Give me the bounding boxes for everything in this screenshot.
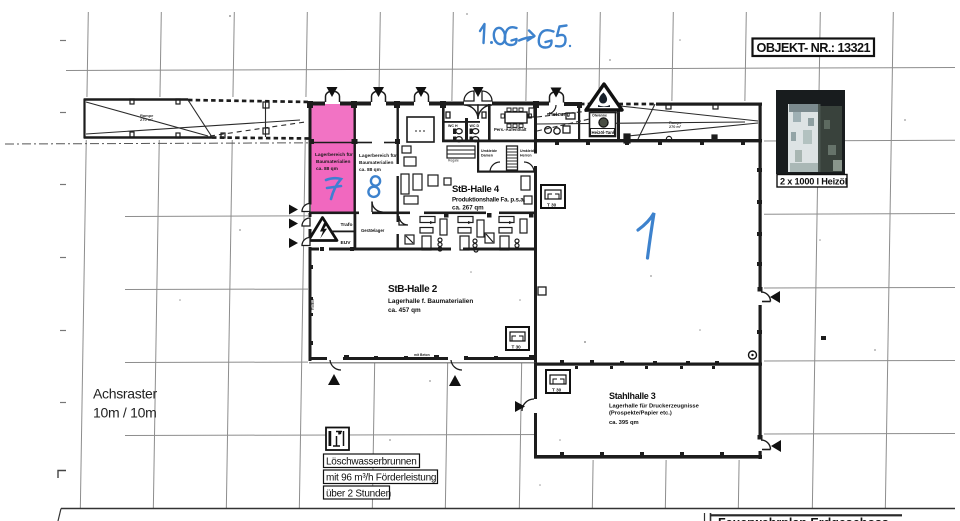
- svg-text:Ölwanne: Ölwanne: [592, 113, 607, 118]
- svg-text:WC D: WC D: [470, 124, 480, 128]
- svg-text:Löschwasserbrunnen: Löschwasserbrunnen: [326, 457, 417, 468]
- svg-text:Lagerhalle f. Baumaterialien: Lagerhalle f. Baumaterialien: [388, 298, 473, 305]
- svg-text:mit Beton: mit Beton: [414, 353, 430, 357]
- svg-text:270 m²: 270 m²: [140, 117, 153, 122]
- svg-text:Lagerhalle für Druckerzeugniss: Lagerhalle für Druckerzeugnisse: [609, 404, 700, 410]
- svg-text:T 30: T 30: [547, 203, 557, 208]
- svg-text:ca. 88 qm: ca. 88 qm: [316, 166, 338, 172]
- svg-text:Gerätelager: Gerätelager: [361, 228, 385, 233]
- svg-text:Rolltor: Rolltor: [311, 298, 315, 310]
- svg-text:ca. 267 qm: ca. 267 qm: [452, 205, 484, 212]
- svg-text:2 x 1000 l Heizöl: 2 x 1000 l Heizöl: [780, 176, 847, 186]
- svg-text:über 2 Stunden: über 2 Stunden: [326, 489, 391, 500]
- svg-text:Trafo: Trafo: [341, 222, 353, 228]
- svg-text:Baumaterialien: Baumaterialien: [359, 160, 393, 166]
- svg-text:10m / 10m: 10m / 10m: [93, 405, 156, 421]
- svg-text:EUV: EUV: [341, 240, 352, 246]
- svg-text:Heizöl-Tank: Heizöl-Tank: [592, 130, 616, 135]
- svg-text:Lagerbereich für: Lagerbereich für: [359, 153, 397, 159]
- svg-text:Umkleide: Umkleide: [481, 149, 497, 153]
- svg-text:Herren: Herren: [520, 154, 532, 158]
- svg-text:Umkleide: Umkleide: [520, 149, 536, 153]
- svg-text:270 m²: 270 m²: [669, 125, 682, 129]
- svg-text:ca. 457 qm: ca. 457 qm: [388, 307, 421, 314]
- svg-text:mit 96 m³/h Förderleistung: mit 96 m³/h Förderleistung: [326, 473, 436, 484]
- svg-text:Achsraster: Achsraster: [93, 386, 158, 402]
- svg-text:ca. 395 qm: ca. 395 qm: [609, 420, 639, 426]
- svg-text:Regale: Regale: [448, 159, 459, 163]
- svg-text:(Prospekte/Papier etc.): (Prospekte/Papier etc.): [609, 411, 672, 417]
- svg-text:Stahlhalle 3: Stahlhalle 3: [609, 391, 656, 401]
- svg-text:Lagerbereich für: Lagerbereich für: [315, 152, 353, 158]
- svg-text:ca. 88 qm: ca. 88 qm: [359, 167, 381, 173]
- svg-text:Produktionshalle Fa. p.s.a.: Produktionshalle Fa. p.s.a.: [452, 197, 525, 204]
- svg-text:Baumaterialien: Baumaterialien: [316, 159, 350, 165]
- svg-text:Damen: Damen: [481, 154, 493, 158]
- svg-text:Feuerwehrplan Erdgeschoss: Feuerwehrplan Erdgeschoss: [718, 516, 889, 521]
- svg-text:T 30: T 30: [552, 388, 562, 393]
- svg-text:StB-Halle 2: StB-Halle 2: [388, 284, 438, 295]
- svg-text:OBJEKT- NR.: 13321: OBJEKT- NR.: 13321: [757, 41, 871, 55]
- svg-text:T 30: T 30: [512, 345, 522, 350]
- svg-text:StB-Halle 4: StB-Halle 4: [452, 184, 500, 195]
- svg-text:WC H: WC H: [448, 124, 458, 128]
